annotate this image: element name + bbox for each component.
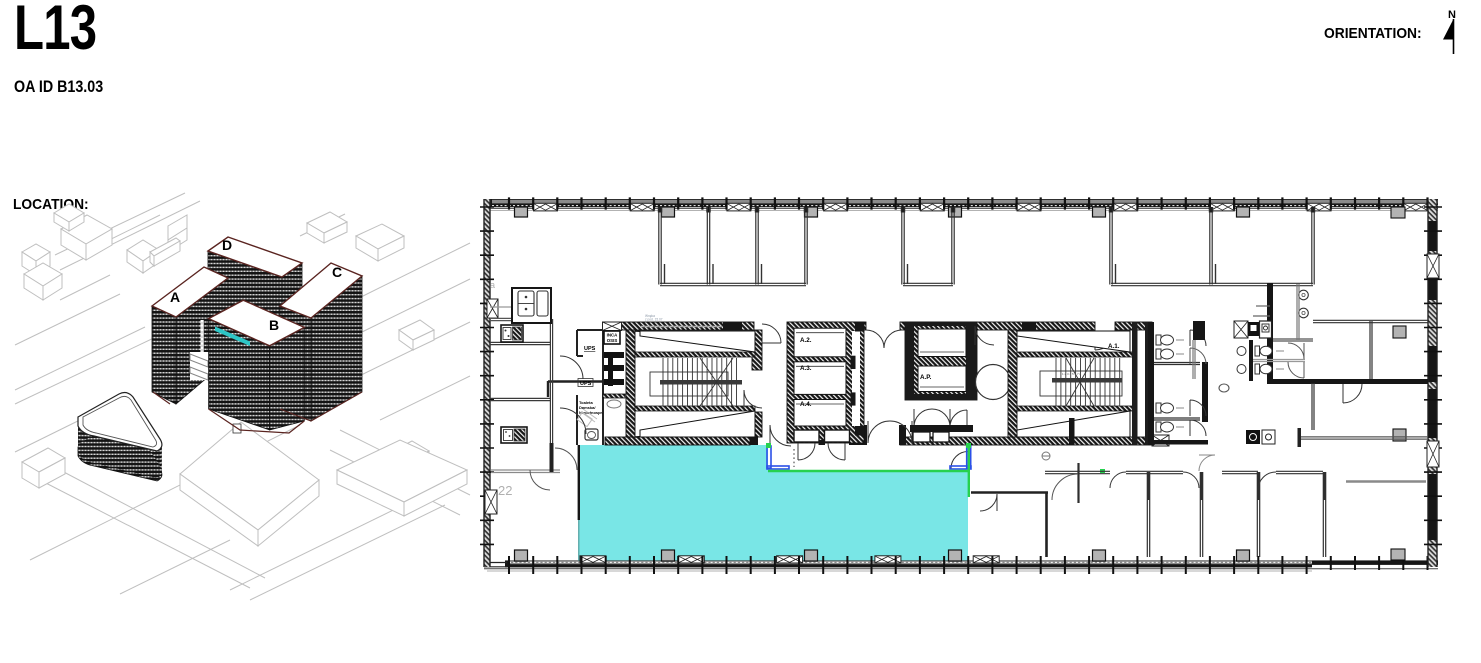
svg-text:OSIS: OSIS [607,338,618,343]
svg-text:a: a [490,280,495,290]
svg-text:A.2.: A.2. [800,337,812,344]
svg-text:22: 22 [498,483,512,498]
svg-text:1 2 3 4 5 6 7 8: 1 2 3 4 5 6 7 8 [1062,372,1082,376]
svg-text:z pod. 15.07: z pod. 15.07 [645,318,663,322]
svg-text:A.P.: A.P. [920,374,932,381]
svg-text:A.3.: A.3. [800,365,812,372]
svg-text:A.4.: A.4. [800,401,812,408]
svg-text:INCA: INCA [607,333,619,338]
svg-text:A.1.: A.1. [1108,343,1120,350]
svg-text:UPS: UPS [584,346,596,352]
